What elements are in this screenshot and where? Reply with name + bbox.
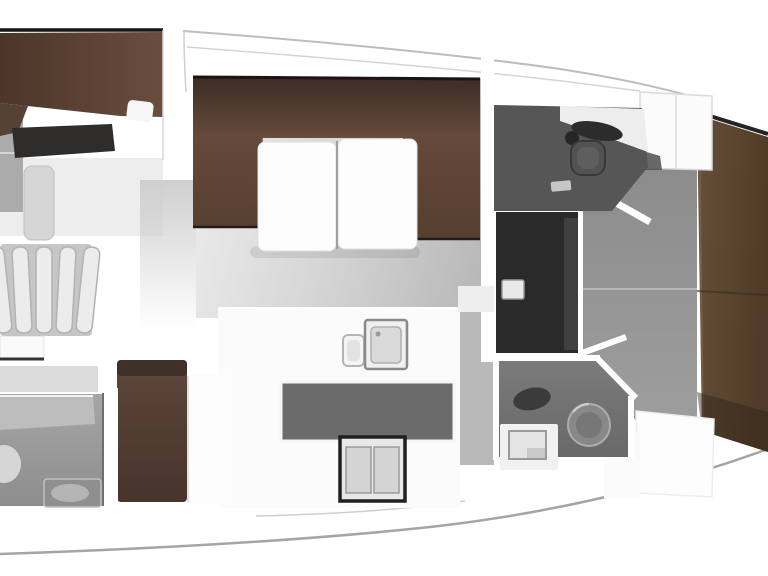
salon-floor-left — [140, 180, 196, 330]
shower-seat — [502, 280, 524, 299]
nav-desk — [0, 336, 44, 359]
step-tread — [12, 247, 32, 334]
step-tread — [36, 247, 52, 333]
berth-pillow — [126, 99, 154, 122]
nav-seat-back — [117, 360, 187, 376]
folding-table-leaf-right — [338, 139, 417, 249]
settee-back-edge — [193, 77, 480, 79]
cutting-module-inner — [347, 340, 360, 361]
galley-floor-well — [281, 382, 454, 441]
nav-seat — [117, 360, 187, 502]
aft-head-wall — [103, 388, 118, 510]
nav-wall — [187, 374, 233, 504]
aft-head — [0, 388, 118, 510]
bow-step-block — [636, 411, 714, 497]
nav-bench-top — [0, 366, 98, 392]
toilet-bowl — [576, 412, 602, 438]
companionway — [0, 244, 100, 336]
floor-mat — [551, 180, 572, 192]
galley-sink-basin — [371, 327, 401, 363]
forward-head — [494, 105, 648, 211]
sink-basin — [51, 484, 89, 502]
yacht-floorplan — [0, 0, 768, 576]
aft-cabin-furniture — [24, 166, 54, 240]
bulkhead-base — [458, 286, 494, 312]
aft-head-cabinet — [0, 396, 95, 430]
folding-table-leaf-left — [258, 142, 336, 251]
floorplan-svg — [0, 0, 768, 576]
stove-burner-left — [346, 447, 371, 493]
main-bulkhead — [481, 58, 494, 362]
shower — [496, 212, 578, 353]
forward-head-2 — [494, 357, 636, 470]
faucet-icon — [376, 332, 381, 337]
galley — [218, 308, 460, 508]
step-tread — [56, 247, 76, 334]
shower-edge — [564, 218, 578, 350]
stove-burner-right — [374, 447, 399, 493]
toilet-lid — [577, 147, 599, 169]
sink-basin-shade — [527, 448, 545, 458]
